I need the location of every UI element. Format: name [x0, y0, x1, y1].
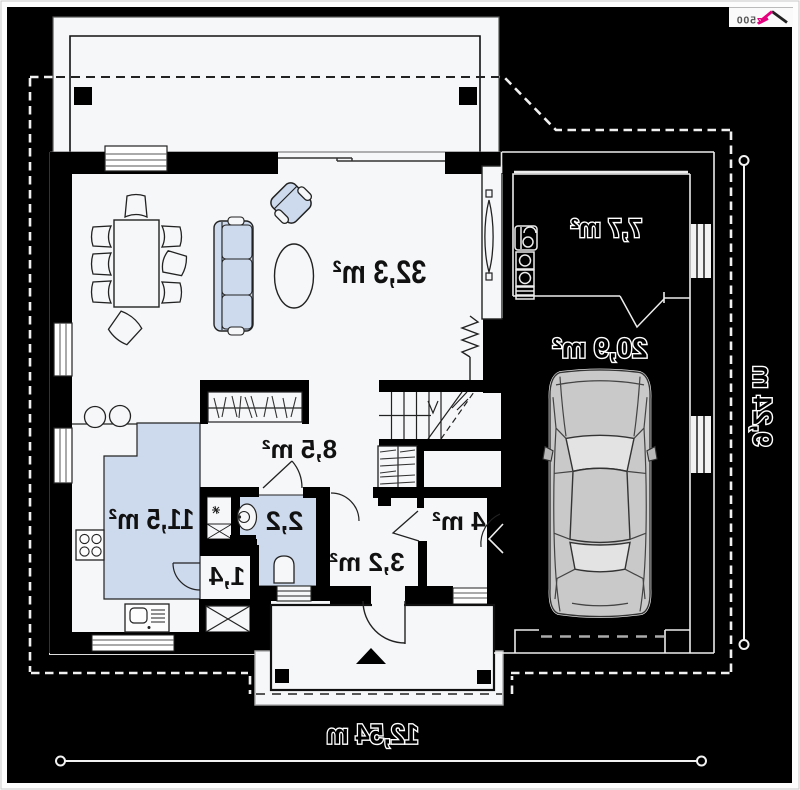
svg-text:z500: z500	[736, 15, 762, 27]
svg-text:4 m²: 4 m²	[432, 506, 486, 536]
svg-text:32,3 m²: 32,3 m²	[333, 255, 427, 291]
svg-text:11,5 m²: 11,5 m²	[109, 502, 195, 535]
svg-text:1,4: 1,4	[208, 561, 245, 591]
svg-text:8,5 m²: 8,5 m²	[262, 434, 337, 464]
svg-text:20,9 m²: 20,9 m²	[553, 333, 648, 364]
svg-text:12,54 m: 12,54 m	[326, 718, 418, 750]
svg-text:3,2 m²: 3,2 m²	[329, 547, 404, 577]
svg-text:7,7 m²: 7,7 m²	[571, 214, 642, 243]
svg-text:2,2: 2,2	[266, 506, 304, 536]
svg-text:9,24 m: 9,24 m	[748, 366, 778, 447]
